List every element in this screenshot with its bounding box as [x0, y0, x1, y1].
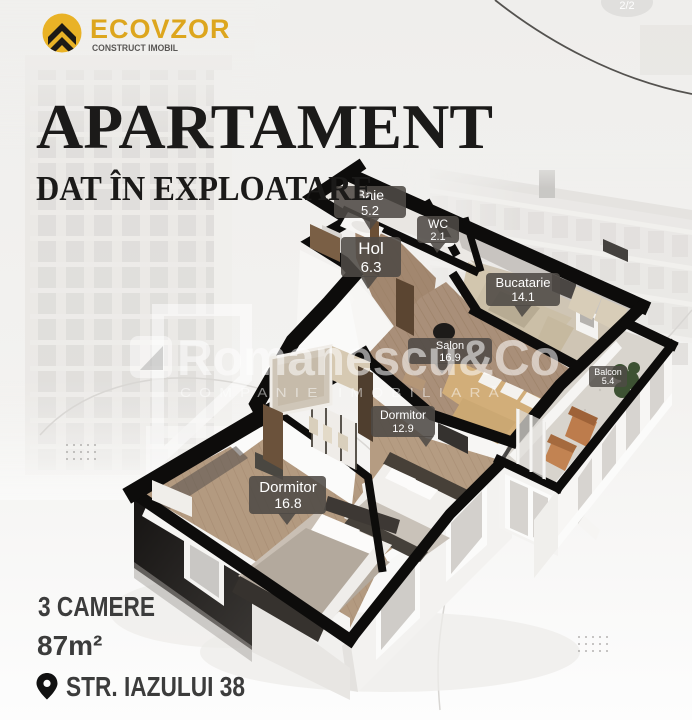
svg-text:APARTAMENT: APARTAMENT — [36, 91, 493, 162]
svg-text:2/2: 2/2 — [619, 0, 634, 12]
svg-text:5.4: 5.4 — [602, 376, 615, 386]
svg-text:2.1: 2.1 — [430, 231, 445, 243]
svg-text:14.1: 14.1 — [511, 290, 535, 304]
svg-text:Bucatarie: Bucatarie — [496, 275, 551, 290]
svg-text:ECOVZOR: ECOVZOR — [90, 14, 231, 44]
svg-text:Hol: Hol — [358, 239, 384, 258]
svg-text:STR. IAZULUI 38: STR. IAZULUI 38 — [66, 671, 245, 702]
svg-text:CONSTRUCT IMOBIL: CONSTRUCT IMOBIL — [92, 43, 178, 53]
svg-text:Dormitor: Dormitor — [259, 479, 317, 496]
svg-text:WC: WC — [428, 217, 448, 231]
svg-text:3 CAMERE: 3 CAMERE — [38, 591, 155, 622]
svg-text:Romanescu&Co: Romanescu&Co — [177, 330, 560, 386]
svg-text:12.9: 12.9 — [392, 423, 413, 435]
svg-text:DAT ÎN EXPLOATARE: DAT ÎN EXPLOATARE — [36, 168, 373, 208]
svg-text:87m²: 87m² — [37, 630, 102, 661]
svg-text:COMPANIE IMOBILIARĂ: COMPANIE IMOBILIARĂ — [180, 385, 507, 400]
svg-text:16.8: 16.8 — [274, 495, 301, 511]
svg-text:Dormitor: Dormitor — [380, 408, 426, 422]
svg-text:6.3: 6.3 — [361, 259, 382, 276]
